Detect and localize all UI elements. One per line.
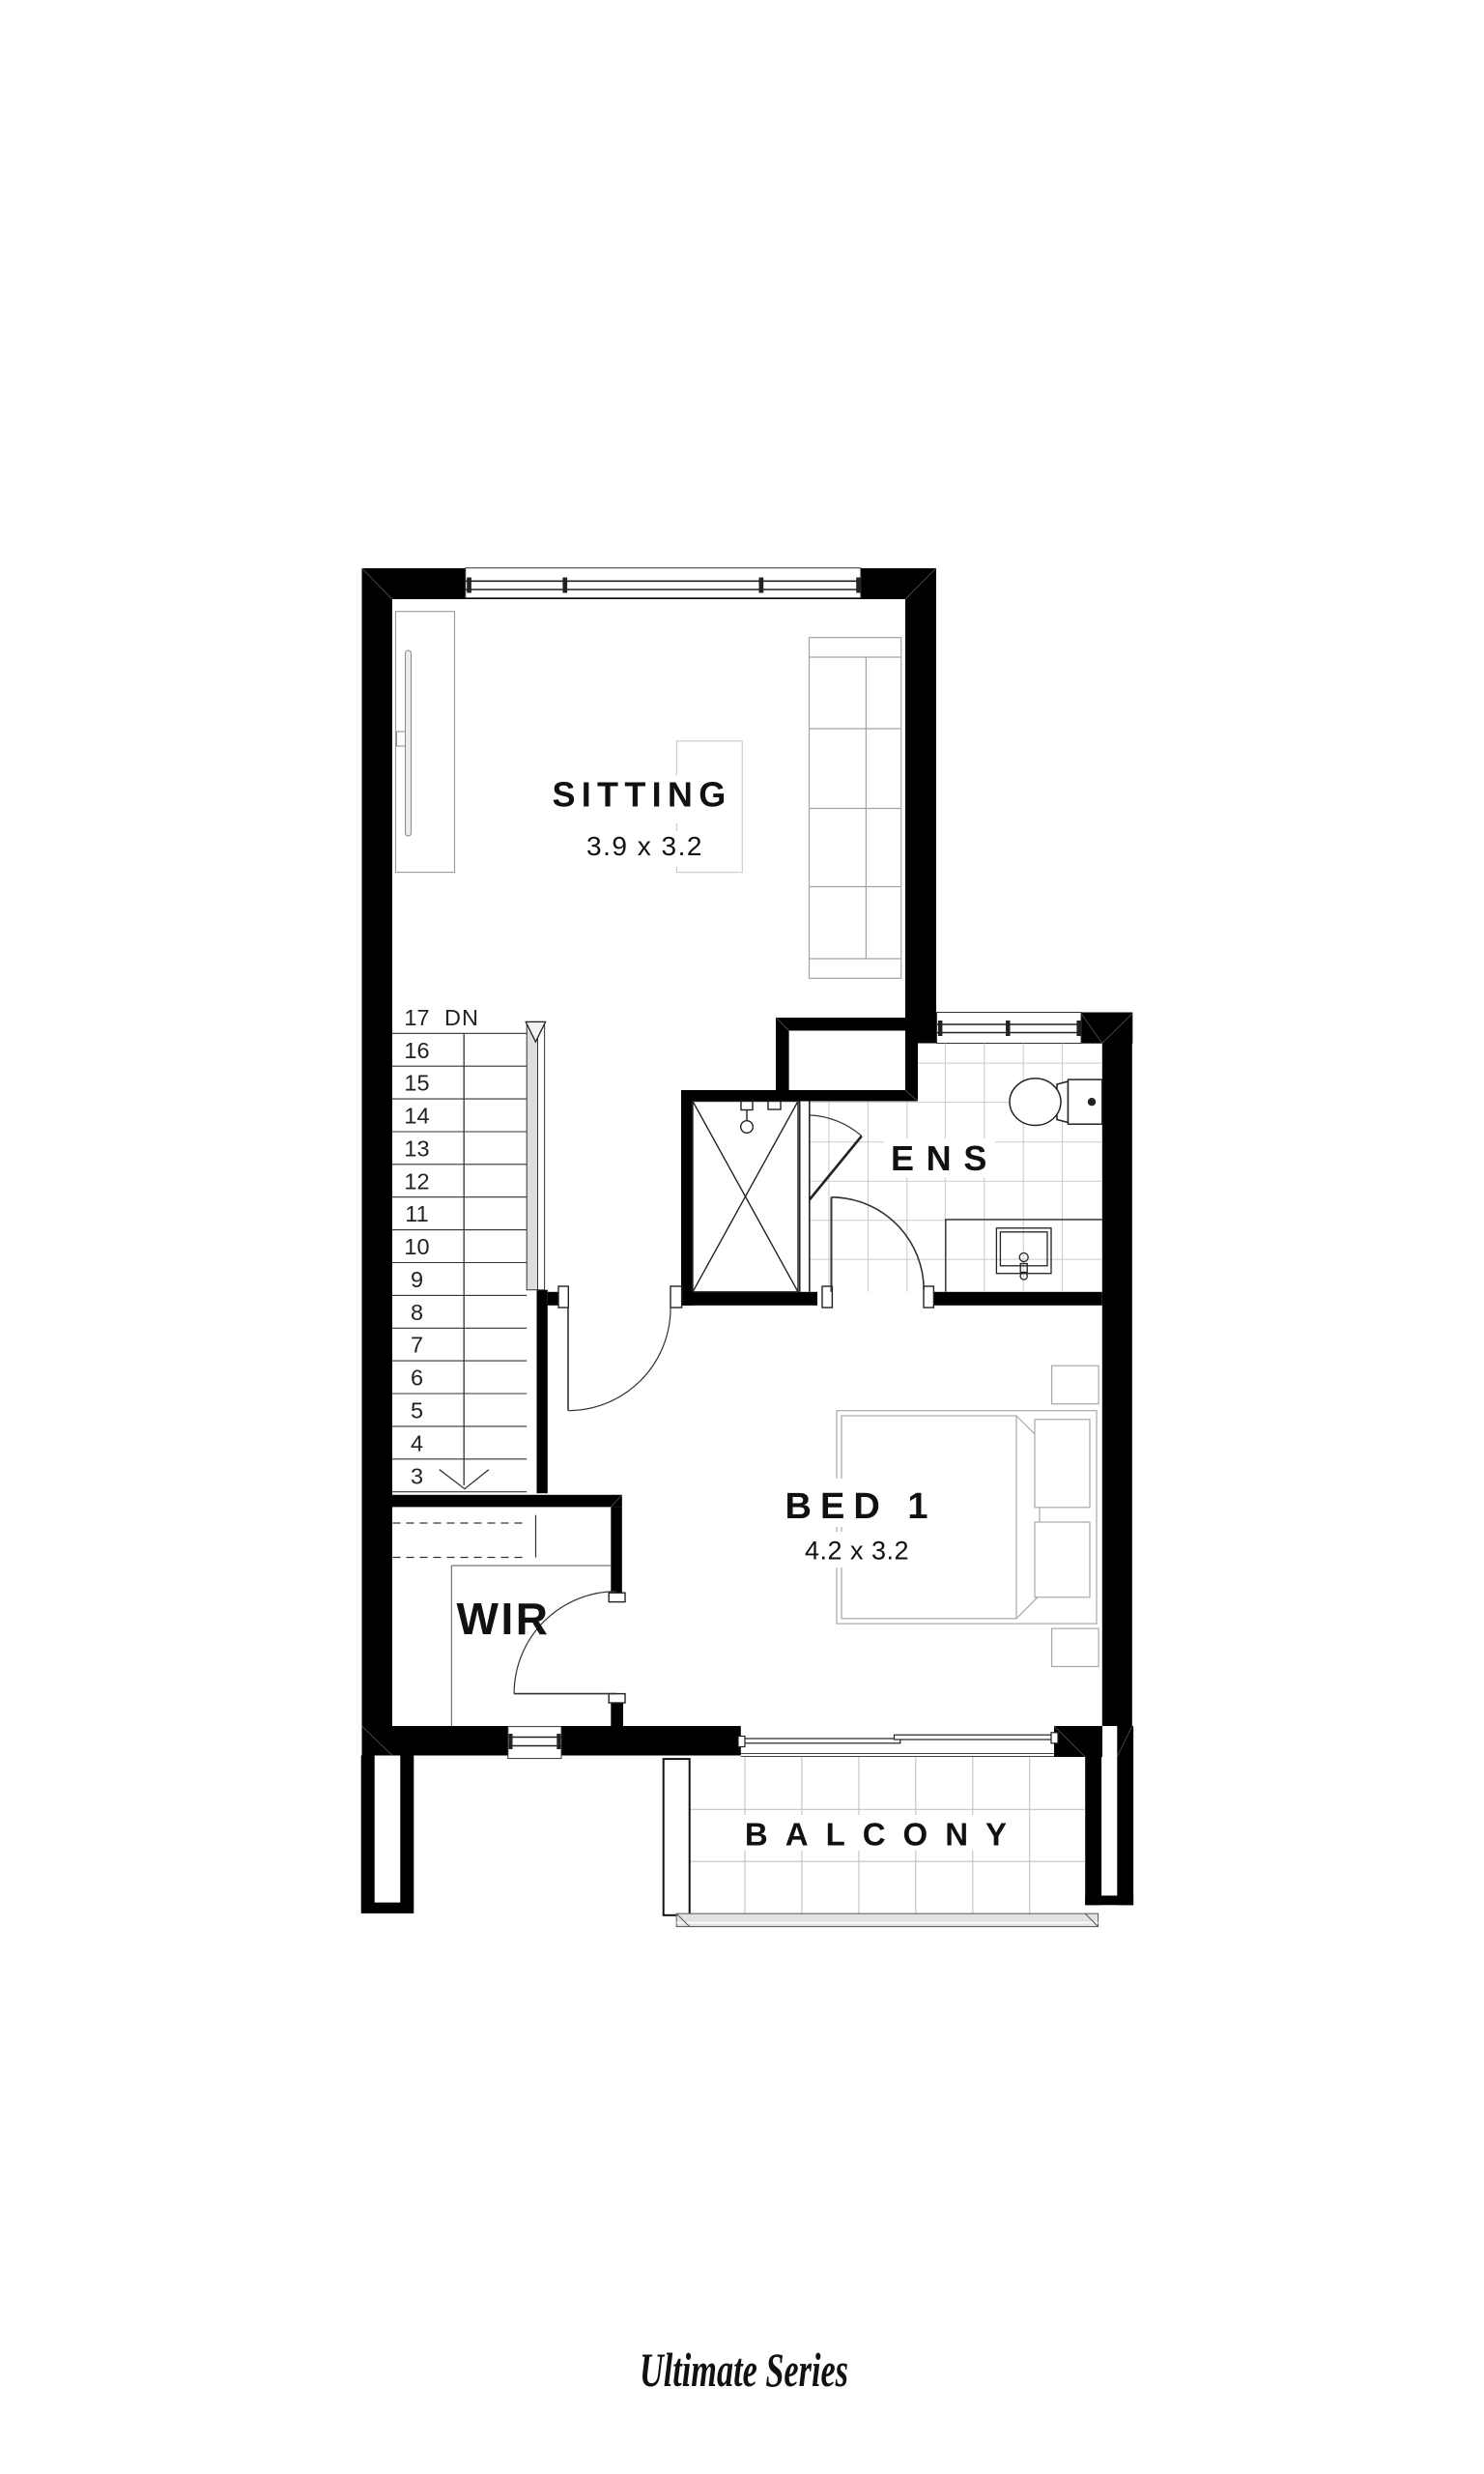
svg-text:4: 4 <box>411 1430 423 1455</box>
svg-text:8: 8 <box>411 1300 423 1325</box>
svg-text:14: 14 <box>404 1104 429 1129</box>
svg-text:17: 17 <box>404 1005 429 1030</box>
svg-text:SITTING: SITTING <box>552 775 731 815</box>
svg-text:ENS: ENS <box>891 1138 999 1178</box>
svg-text:4.2 x 3.2: 4.2 x 3.2 <box>805 1536 909 1565</box>
svg-text:13: 13 <box>404 1136 429 1161</box>
svg-text:3: 3 <box>411 1463 423 1488</box>
svg-text:DN: DN <box>444 1005 479 1030</box>
svg-text:WIR: WIR <box>457 1594 551 1644</box>
svg-text:10: 10 <box>404 1234 429 1259</box>
svg-text:11: 11 <box>405 1201 428 1226</box>
svg-text:BED 1: BED 1 <box>785 1486 937 1527</box>
svg-text:9: 9 <box>411 1267 423 1292</box>
svg-text:Ultimate Series: Ultimate Series <box>640 2343 848 2397</box>
svg-text:16: 16 <box>404 1038 429 1063</box>
svg-text:3.9 x 3.2: 3.9 x 3.2 <box>586 831 703 861</box>
svg-text:6: 6 <box>411 1366 423 1391</box>
svg-text:5: 5 <box>411 1398 423 1424</box>
svg-text:BALCONY: BALCONY <box>745 1816 1024 1852</box>
svg-text:15: 15 <box>404 1071 429 1096</box>
svg-text:7: 7 <box>411 1333 423 1358</box>
svg-text:12: 12 <box>404 1168 429 1194</box>
